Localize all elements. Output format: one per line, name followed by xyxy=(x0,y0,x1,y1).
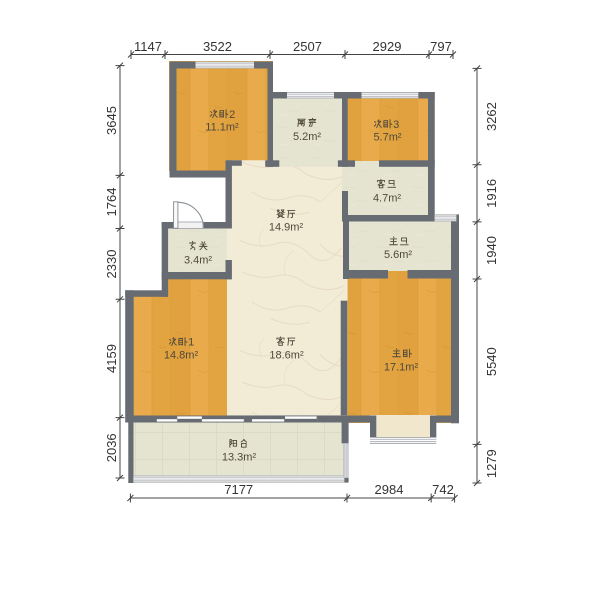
svg-text:1764: 1764 xyxy=(104,188,119,217)
svg-text:3645: 3645 xyxy=(104,106,119,135)
svg-text:13.3m²: 13.3m² xyxy=(222,452,257,464)
svg-text:5.2m²: 5.2m² xyxy=(293,131,321,143)
svg-text:18.6m²: 18.6m² xyxy=(269,350,304,362)
svg-text:4159: 4159 xyxy=(104,344,119,373)
svg-text:2: 2 xyxy=(229,109,235,121)
svg-text:3522: 3522 xyxy=(203,39,232,54)
svg-text:1147: 1147 xyxy=(134,39,162,54)
svg-text:742: 742 xyxy=(432,482,454,497)
svg-text:3: 3 xyxy=(393,119,399,131)
svg-text:3262: 3262 xyxy=(484,102,499,131)
svg-text:1279: 1279 xyxy=(484,449,499,478)
svg-text:11.1m²: 11.1m² xyxy=(205,122,239,134)
svg-text:5540: 5540 xyxy=(484,347,499,376)
svg-text:2507: 2507 xyxy=(293,39,322,54)
svg-text:2330: 2330 xyxy=(104,250,119,279)
svg-text:797: 797 xyxy=(430,39,452,54)
svg-text:1: 1 xyxy=(188,337,194,349)
svg-text:5.6m²: 5.6m² xyxy=(384,249,412,261)
svg-text:3.4m²: 3.4m² xyxy=(184,255,212,267)
svg-text:14.8m²: 14.8m² xyxy=(164,350,199,362)
svg-text:5.7m²: 5.7m² xyxy=(373,131,401,143)
svg-text:2929: 2929 xyxy=(373,39,402,54)
svg-text:2984: 2984 xyxy=(375,482,404,497)
svg-text:2036: 2036 xyxy=(104,433,119,462)
svg-text:14.9m²: 14.9m² xyxy=(269,222,304,234)
svg-text:4.7m²: 4.7m² xyxy=(373,193,401,205)
svg-text:17.1m²: 17.1m² xyxy=(384,362,419,374)
svg-text:1940: 1940 xyxy=(484,236,499,265)
svg-text:7177: 7177 xyxy=(224,482,253,497)
svg-text:1916: 1916 xyxy=(484,179,499,208)
